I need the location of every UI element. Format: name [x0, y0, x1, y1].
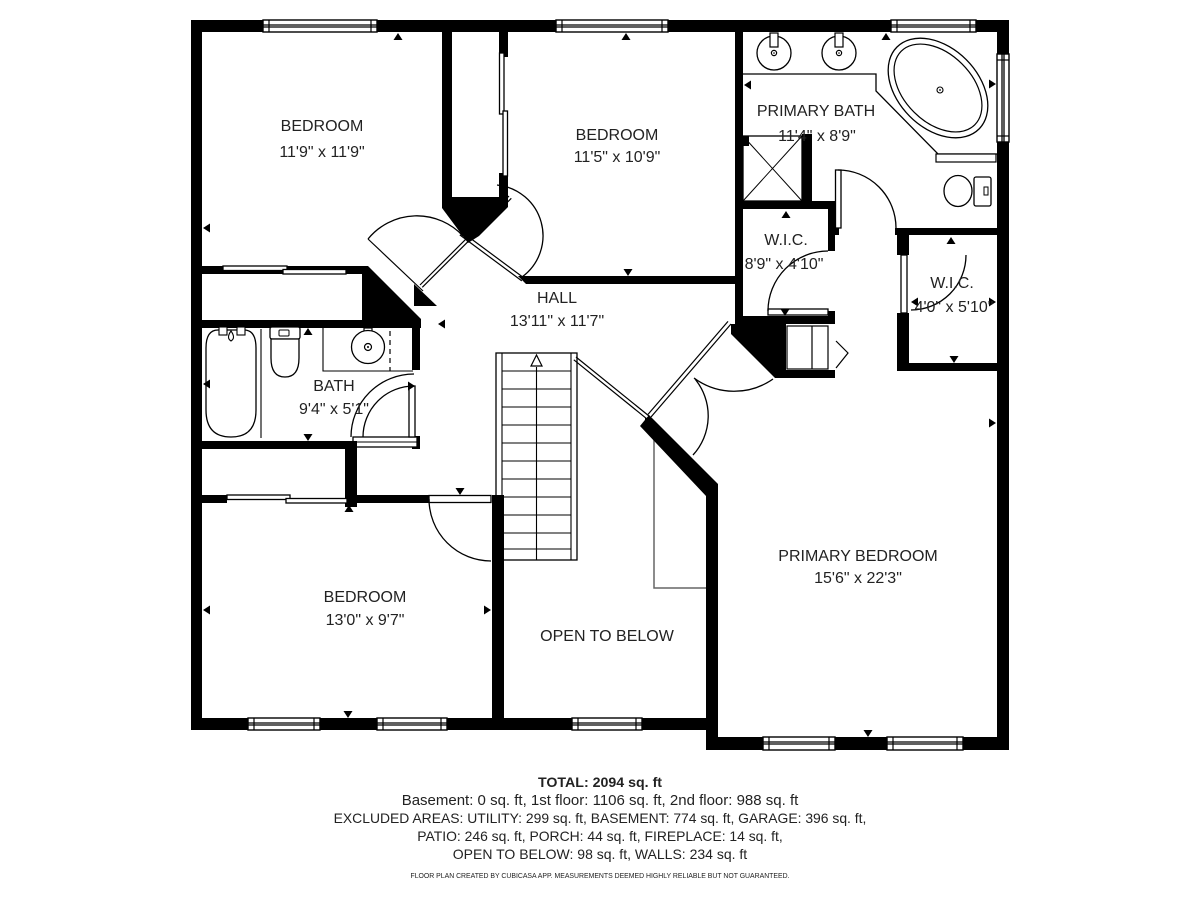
svg-text:8'9" x 4'10": 8'9" x 4'10"	[745, 256, 824, 273]
svg-text:EXCLUDED AREAS: UTILITY: 299 s: EXCLUDED AREAS: UTILITY: 299 sq. ft, BAS…	[334, 810, 867, 826]
svg-text:13'11" x 11'7": 13'11" x 11'7"	[510, 313, 604, 330]
svg-text:11'9" x 11'9": 11'9" x 11'9"	[279, 144, 364, 161]
svg-text:HALL: HALL	[537, 290, 577, 307]
svg-text:11'4" x 8'9": 11'4" x 8'9"	[778, 128, 856, 145]
svg-text:OPEN TO BELOW: OPEN TO BELOW	[540, 628, 675, 645]
svg-text:BEDROOM: BEDROOM	[324, 589, 407, 606]
svg-text:W.I.C.: W.I.C.	[764, 232, 808, 249]
svg-text:13'0" x 9'7": 13'0" x 9'7"	[326, 612, 405, 629]
svg-text:TOTAL: 2094 sq. ft: TOTAL: 2094 sq. ft	[538, 775, 662, 791]
svg-text:15'6" x 22'3": 15'6" x 22'3"	[814, 570, 902, 587]
svg-text:FLOOR PLAN CREATED BY CUBICASA: FLOOR PLAN CREATED BY CUBICASA APP. MEAS…	[411, 873, 790, 880]
svg-text:4'0" x 5'10": 4'0" x 5'10"	[915, 299, 994, 316]
svg-text:9'4" x 5'1": 9'4" x 5'1"	[299, 401, 369, 418]
svg-text:PATIO: 246 sq. ft, PORCH: 44 s: PATIO: 246 sq. ft, PORCH: 44 sq. ft, FIR…	[417, 828, 782, 844]
svg-text:Basement: 0 sq. ft, 1st floor:: Basement: 0 sq. ft, 1st floor: 1106 sq. …	[402, 792, 799, 809]
svg-text:BATH: BATH	[313, 378, 354, 395]
svg-text:OPEN TO BELOW: 98 sq. ft, WALL: OPEN TO BELOW: 98 sq. ft, WALLS: 234 sq.…	[453, 846, 747, 862]
svg-text:PRIMARY BATH: PRIMARY BATH	[757, 103, 875, 120]
svg-text:BEDROOM: BEDROOM	[576, 127, 659, 144]
svg-text:W.I.C.: W.I.C.	[930, 275, 974, 292]
svg-text:11'5" x 10'9": 11'5" x 10'9"	[574, 149, 661, 166]
svg-text:BEDROOM: BEDROOM	[281, 118, 364, 135]
svg-text:PRIMARY BEDROOM: PRIMARY BEDROOM	[778, 548, 937, 565]
